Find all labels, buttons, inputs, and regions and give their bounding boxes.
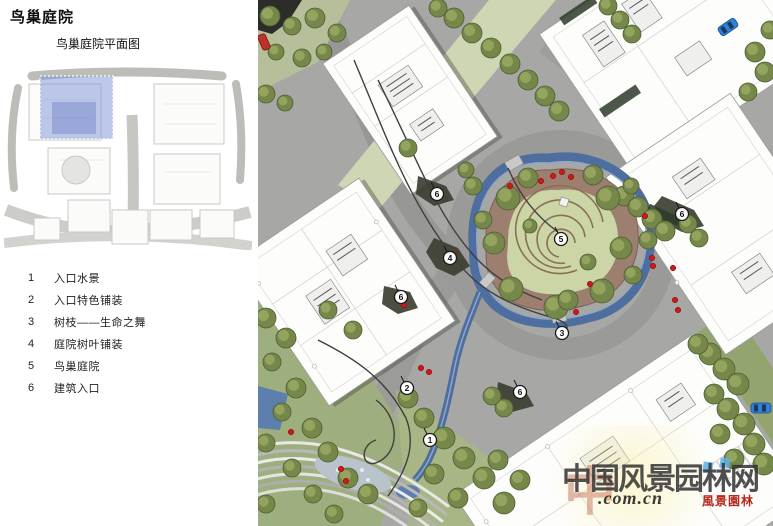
legend-item-label: 入口水景 bbox=[54, 270, 100, 286]
legend-item-number: 6 bbox=[28, 382, 54, 394]
plan-subtitle: 鸟巢庭院平面图 bbox=[56, 35, 140, 52]
legend-item-number: 4 bbox=[28, 338, 54, 350]
legend-item-number: 1 bbox=[28, 272, 54, 284]
master-plan: 123456666 bbox=[258, 0, 773, 526]
legend-item-number: 2 bbox=[28, 294, 54, 306]
svg-text:3: 3 bbox=[560, 328, 565, 338]
svg-text:2: 2 bbox=[405, 383, 410, 393]
legend-item: 4庭院树叶铺装 bbox=[28, 333, 146, 355]
overview-highlight bbox=[40, 76, 113, 139]
legend-item: 5鸟巢庭院 bbox=[28, 355, 146, 377]
legend-item-number: 3 bbox=[28, 316, 54, 328]
document-page: 鸟巢庭院 鸟巢庭院平面图 bbox=[0, 0, 773, 526]
svg-text:1: 1 bbox=[428, 435, 433, 445]
svg-text:6: 6 bbox=[435, 189, 440, 199]
overview-map bbox=[4, 60, 252, 250]
svg-text:6: 6 bbox=[518, 387, 523, 397]
legend-item-label: 庭院树叶铺装 bbox=[54, 336, 123, 352]
legend-item-label: 建筑入口 bbox=[54, 380, 100, 396]
left-panel: 鸟巢庭院 鸟巢庭院平面图 bbox=[0, 0, 258, 526]
car-blue-right bbox=[751, 403, 771, 413]
legend-item: 3树枝——生命之舞 bbox=[28, 311, 146, 333]
legend-item-label: 入口特色铺装 bbox=[54, 292, 123, 308]
svg-text:6: 6 bbox=[680, 209, 685, 219]
svg-text:6: 6 bbox=[399, 292, 404, 302]
svg-text:4: 4 bbox=[448, 253, 453, 263]
legend-item-label: 树枝——生命之舞 bbox=[54, 314, 146, 330]
legend-list: 1入口水景2入口特色铺装3树枝——生命之舞4庭院树叶铺装5鸟巢庭院6建筑入口 bbox=[28, 267, 146, 399]
page-title: 鸟巢庭院 bbox=[10, 6, 74, 27]
legend-item-label: 鸟巢庭院 bbox=[54, 358, 100, 374]
legend-item: 6建筑入口 bbox=[28, 377, 146, 399]
legend-item: 1入口水景 bbox=[28, 267, 146, 289]
legend-item: 2入口特色铺装 bbox=[28, 289, 146, 311]
svg-text:5: 5 bbox=[559, 234, 564, 244]
legend-item-number: 5 bbox=[28, 360, 54, 372]
